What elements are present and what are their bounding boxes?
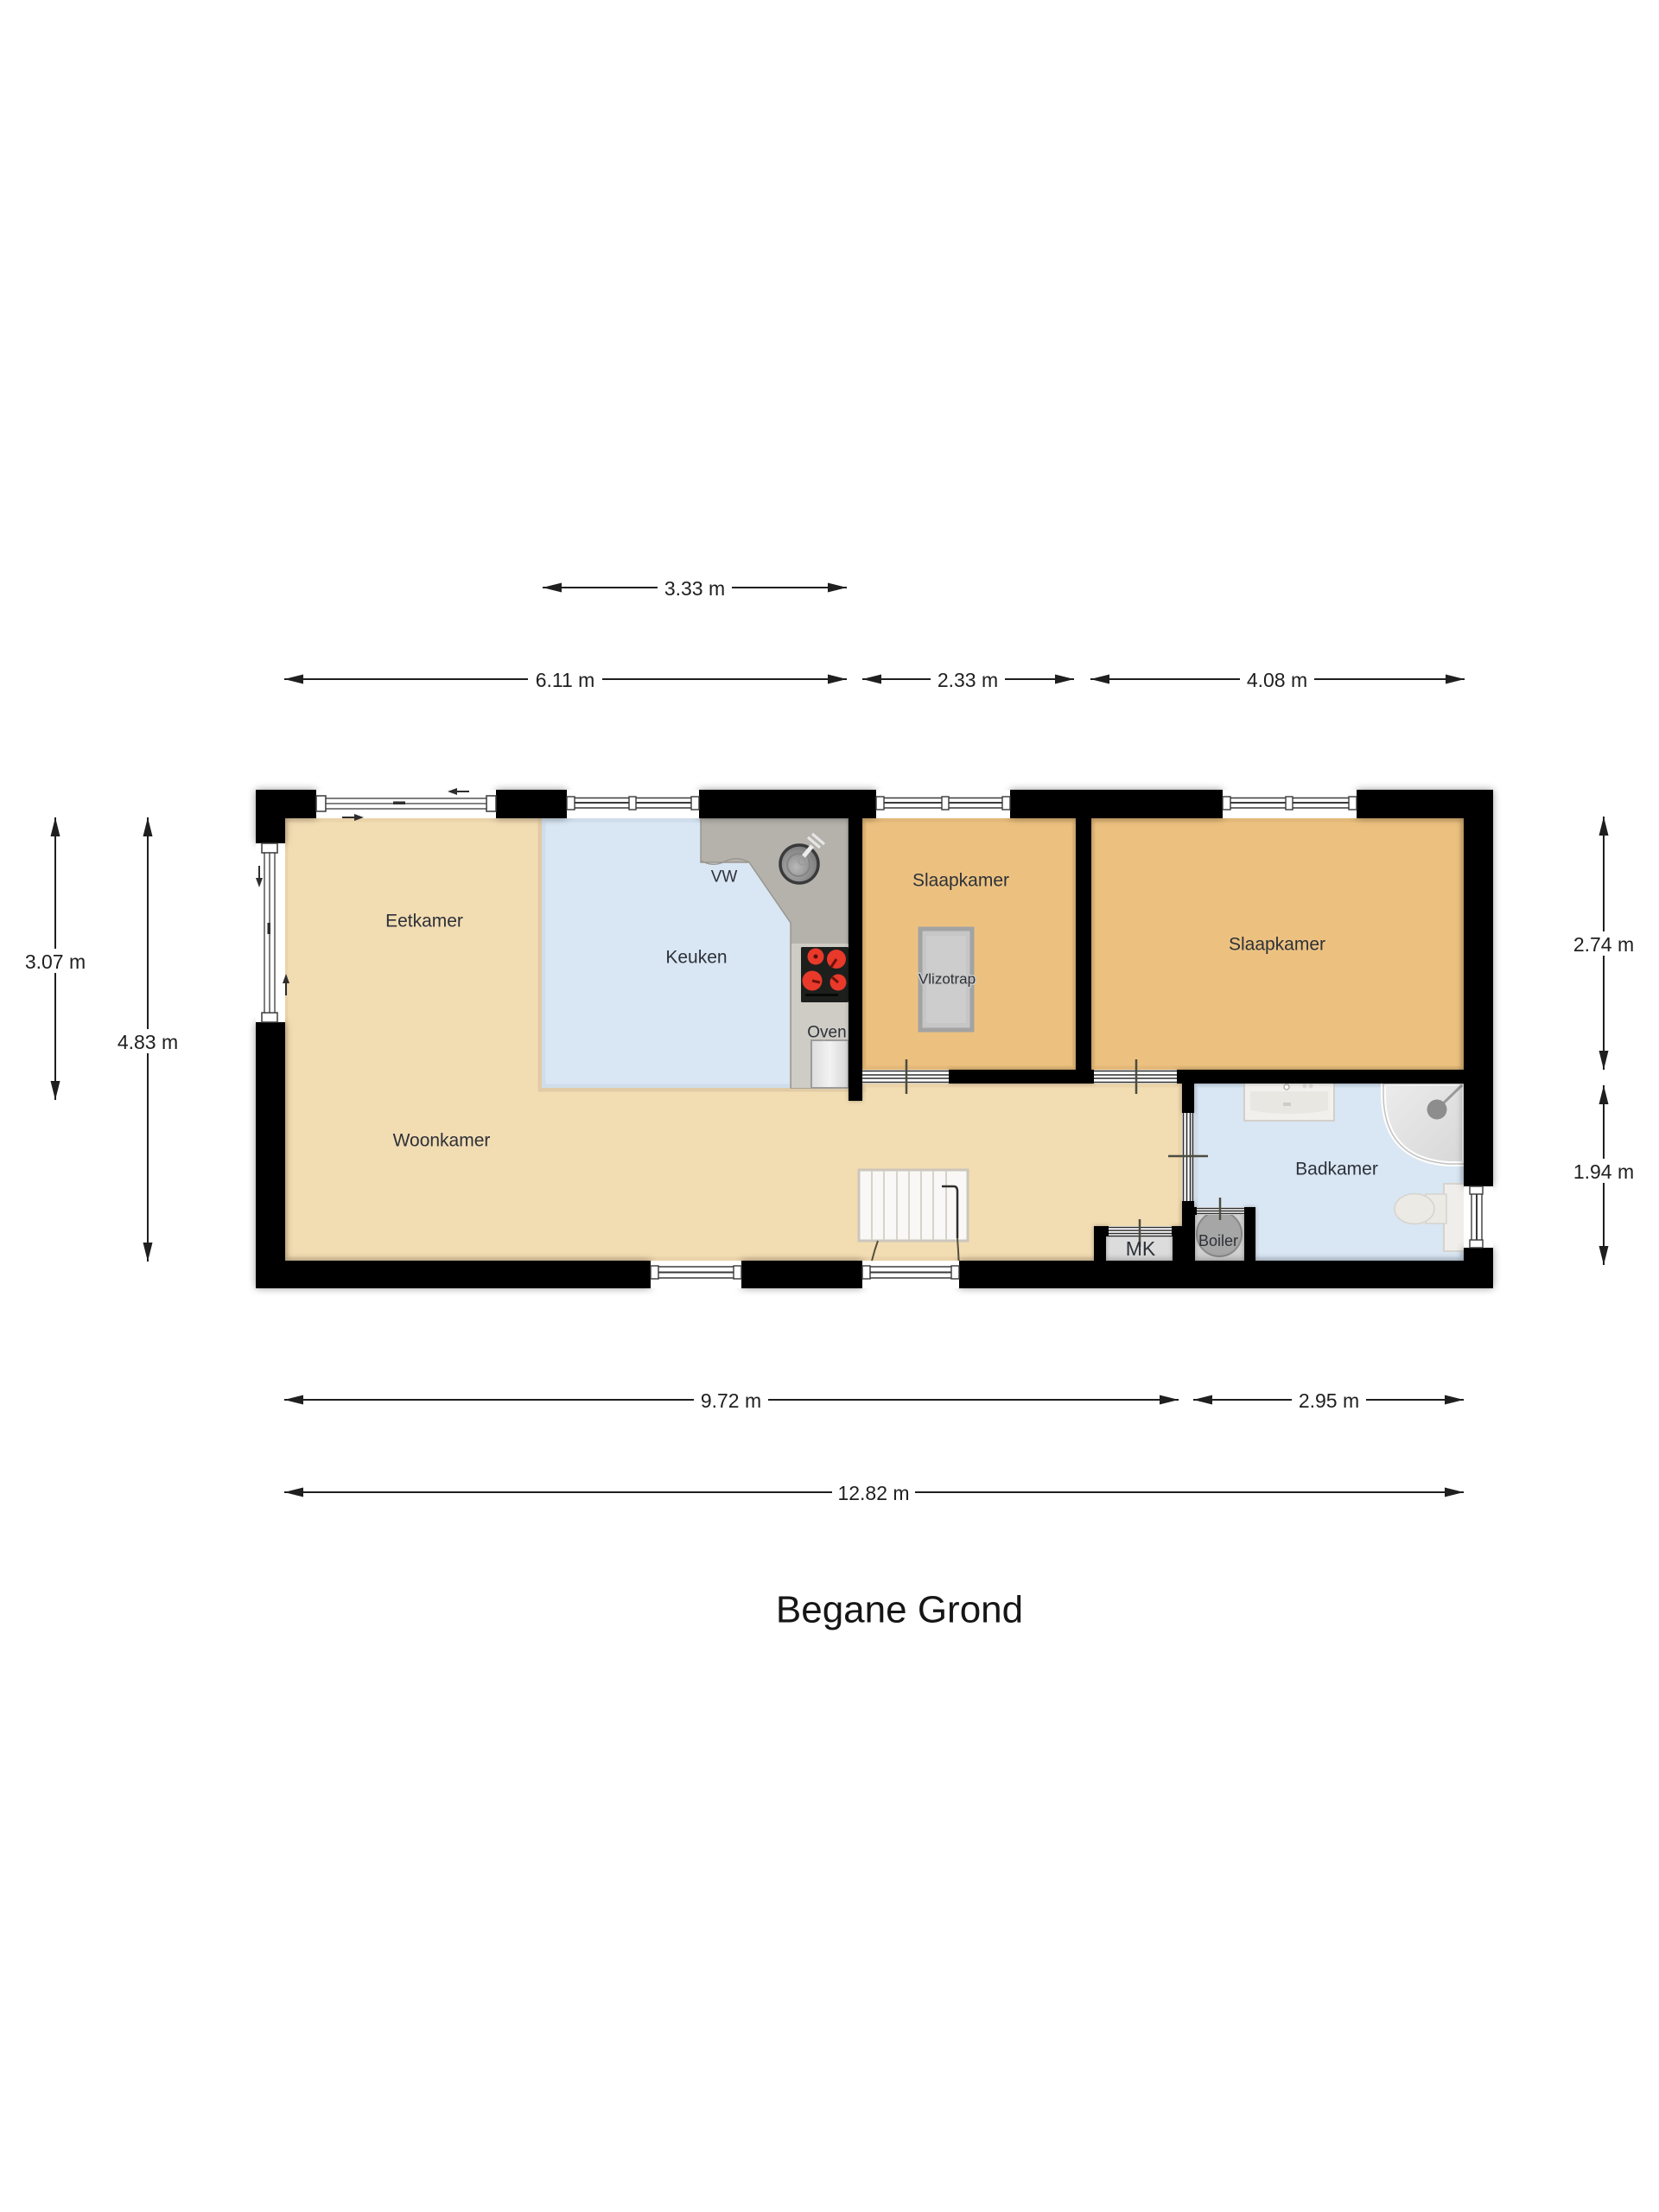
svg-text:Woonkamer: Woonkamer: [393, 1131, 491, 1151]
svg-text:Begane Grond: Begane Grond: [776, 1589, 1023, 1631]
svg-text:Badkamer: Badkamer: [1295, 1160, 1378, 1179]
svg-text:6.11 m: 6.11 m: [536, 669, 595, 691]
svg-text:4.83 m: 4.83 m: [118, 1031, 178, 1053]
svg-text:2.74 m: 2.74 m: [1573, 933, 1634, 956]
svg-text:2.95 m: 2.95 m: [1299, 1389, 1359, 1412]
svg-text:12.82 m: 12.82 m: [837, 1482, 909, 1504]
svg-text:Eetkamer: Eetkamer: [385, 912, 463, 931]
svg-text:Slaapkamer: Slaapkamer: [1229, 935, 1325, 955]
svg-text:2.33 m: 2.33 m: [938, 669, 998, 691]
svg-text:4.08 m: 4.08 m: [1247, 669, 1307, 691]
svg-text:Keuken: Keuken: [665, 948, 727, 968]
svg-text:Oven: Oven: [807, 1024, 846, 1042]
svg-text:MK: MK: [1126, 1237, 1156, 1260]
svg-text:3.33 m: 3.33 m: [664, 577, 725, 600]
svg-text:9.72 m: 9.72 m: [701, 1389, 761, 1412]
svg-text:3.07 m: 3.07 m: [25, 950, 86, 973]
svg-text:Slaapkamer: Slaapkamer: [912, 871, 1009, 891]
svg-text:VW: VW: [711, 868, 738, 887]
svg-text:Boiler: Boiler: [1198, 1232, 1238, 1249]
svg-text:1.94 m: 1.94 m: [1573, 1160, 1634, 1183]
svg-text:Vlizotrap: Vlizotrap: [918, 971, 976, 988]
